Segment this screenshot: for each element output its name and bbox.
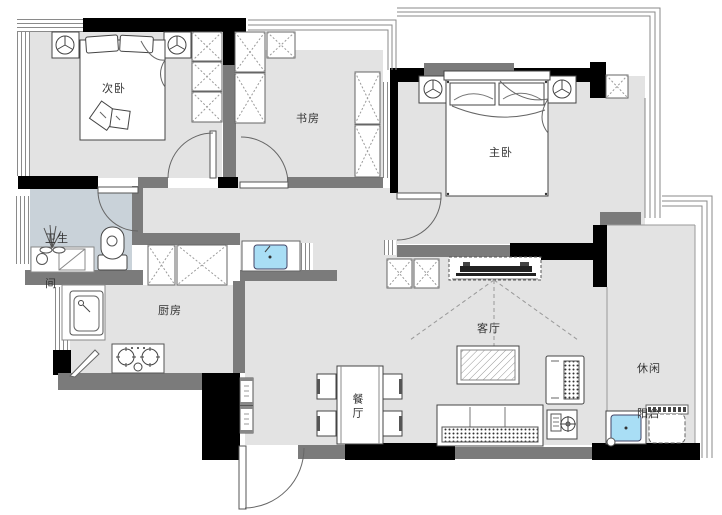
- label-study: 书房: [296, 112, 320, 127]
- label-balcony: 休闲 阳台: [637, 332, 661, 452]
- label-secondary-bedroom: 次卧: [102, 82, 126, 97]
- master-bedroom-furniture: [419, 71, 576, 196]
- floor-plan: 次卧 书房 主卧 卫生 间 厨房 客厅 餐厅 休闲 阳台: [0, 0, 722, 515]
- sofa: [437, 405, 543, 446]
- doors: [70, 131, 441, 509]
- label-bathroom: 卫生 间: [45, 202, 69, 322]
- label-kitchen: 厨房: [158, 304, 182, 319]
- label-master-bedroom: 主卧: [489, 146, 513, 161]
- tv-unit: [449, 257, 541, 280]
- door-arc-study: [241, 137, 288, 184]
- furniture-layer: [0, 0, 722, 515]
- hallway-basin: [242, 241, 300, 271]
- tv-sightlines: [410, 280, 578, 349]
- side-table: [547, 410, 577, 439]
- armchair: [546, 356, 584, 404]
- x-cabinets: [148, 32, 628, 288]
- door-leaf-kitchen: [70, 350, 99, 377]
- entry-cabinets: [240, 378, 253, 433]
- kitchen-fixtures: [62, 285, 164, 373]
- door-arc-master-bedroom: [397, 196, 441, 240]
- door-arc-entry: [245, 448, 304, 508]
- door-arc-secondary-bedroom: [168, 133, 213, 178]
- coffee-table: [457, 346, 519, 384]
- door-arc-bathroom: [98, 191, 138, 231]
- label-dining-room: 餐厅: [349, 393, 364, 421]
- label-living-room: 客厅: [477, 322, 501, 337]
